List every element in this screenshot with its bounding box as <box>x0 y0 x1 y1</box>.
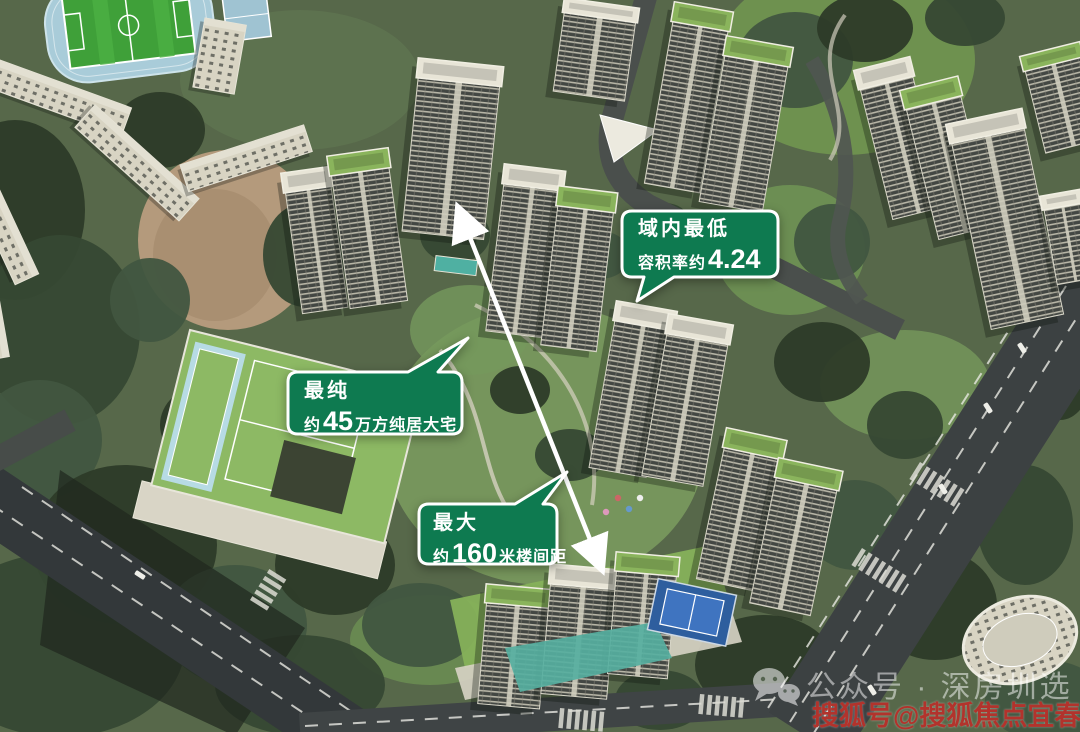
aerial-render-view: 域内最低 容积率约4.24 最纯 约45万方纯居大宅 最大 约160米楼间距 <box>0 0 1080 732</box>
callout-title: 最大 <box>433 510 567 536</box>
site-3d-scene <box>0 0 1080 732</box>
callout-title: 最纯 <box>304 378 457 404</box>
callout-line2: 约45万方纯居大宅 <box>304 404 457 439</box>
callout-line2: 约160米楼间距 <box>433 536 567 571</box>
callout-spacing: 最大 约160米楼间距 <box>417 466 587 570</box>
callout-plot-ratio: 域内最低 容积率约4.24 <box>620 209 782 309</box>
callout-line2: 容积率约4.24 <box>638 242 763 277</box>
sohu-watermark-text: 搜狐号@搜狐焦点宜春站 <box>812 694 1080 732</box>
callout-purity: 最纯 约45万方纯居大宅 <box>286 330 498 442</box>
callout-title: 域内最低 <box>638 216 763 242</box>
residential-tower <box>545 0 639 108</box>
wechat-icon <box>750 666 802 706</box>
